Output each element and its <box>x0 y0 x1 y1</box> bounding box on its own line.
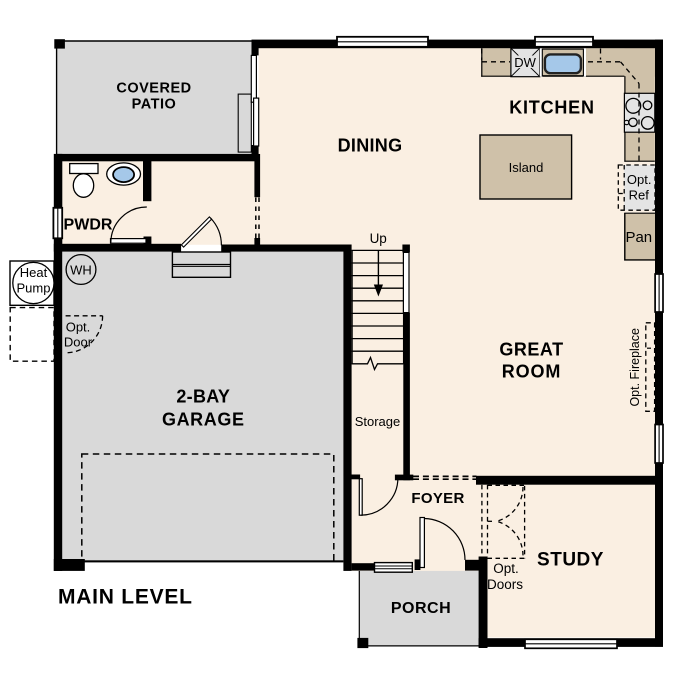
svg-text:Ref: Ref <box>629 188 650 203</box>
svg-text:Door: Door <box>64 335 93 350</box>
svg-text:DW: DW <box>514 55 536 70</box>
svg-text:Heat: Heat <box>20 265 48 280</box>
svg-text:PWDR: PWDR <box>64 216 113 233</box>
svg-text:PORCH: PORCH <box>391 600 451 617</box>
svg-text:Doors: Doors <box>487 577 523 592</box>
svg-text:ROOM: ROOM <box>502 362 562 382</box>
svg-text:Up: Up <box>370 231 387 246</box>
svg-text:DINING: DINING <box>338 136 403 156</box>
svg-text:KITCHEN: KITCHEN <box>509 98 595 118</box>
svg-text:Storage: Storage <box>355 414 401 429</box>
svg-text:STUDY: STUDY <box>537 550 604 571</box>
svg-text:Island: Island <box>509 160 544 175</box>
svg-text:FOYER: FOYER <box>411 490 464 507</box>
svg-text:Pan: Pan <box>625 229 652 246</box>
svg-text:GREAT: GREAT <box>499 339 563 359</box>
svg-text:Opt. Fireplace: Opt. Fireplace <box>628 328 642 407</box>
svg-text:GARAGE: GARAGE <box>162 410 245 430</box>
svg-text:Opt.: Opt. <box>493 561 519 576</box>
svg-text:2-BAY: 2-BAY <box>176 387 230 407</box>
svg-text:WH: WH <box>70 262 92 277</box>
svg-text:COVERED: COVERED <box>116 80 191 96</box>
svg-text:Opt.: Opt. <box>627 172 652 187</box>
svg-text:PATIO: PATIO <box>132 97 177 113</box>
svg-text:MAIN LEVEL: MAIN LEVEL <box>58 585 193 608</box>
svg-text:Opt.: Opt. <box>66 320 91 335</box>
svg-text:Pump: Pump <box>17 281 51 296</box>
